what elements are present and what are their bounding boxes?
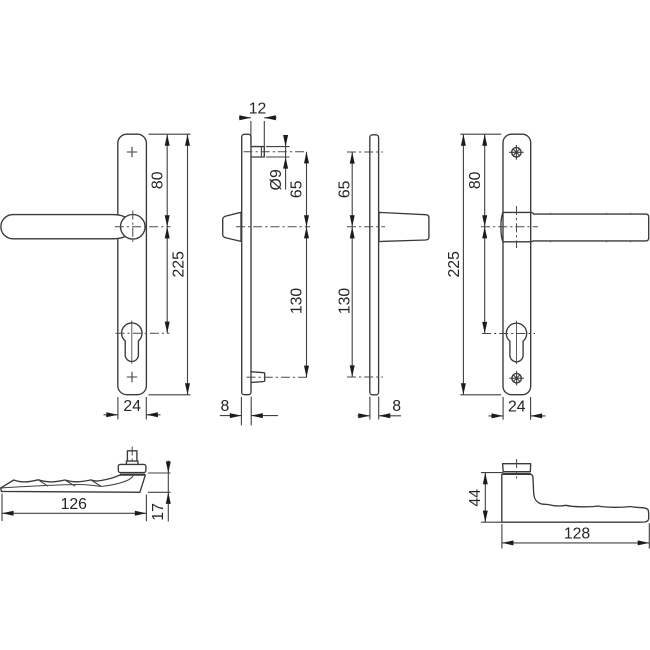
svg-text:8: 8 xyxy=(221,398,230,415)
svg-text:24: 24 xyxy=(508,398,526,415)
svg-text:126: 126 xyxy=(61,496,88,513)
svg-text:225: 225 xyxy=(170,251,187,278)
svg-text:130: 130 xyxy=(288,288,305,315)
svg-text:17: 17 xyxy=(150,503,167,521)
svg-text:65: 65 xyxy=(288,180,305,198)
svg-text:80: 80 xyxy=(150,171,167,189)
svg-text:44: 44 xyxy=(467,489,484,507)
svg-text:80: 80 xyxy=(467,171,484,189)
svg-text:225: 225 xyxy=(446,251,463,278)
svg-text:128: 128 xyxy=(564,526,591,543)
svg-text:65: 65 xyxy=(337,180,354,198)
svg-text:24: 24 xyxy=(123,398,141,415)
svg-text:12: 12 xyxy=(249,100,267,117)
svg-text:130: 130 xyxy=(337,288,354,315)
svg-text:8: 8 xyxy=(392,398,401,415)
svg-text:Ø9: Ø9 xyxy=(268,169,285,190)
